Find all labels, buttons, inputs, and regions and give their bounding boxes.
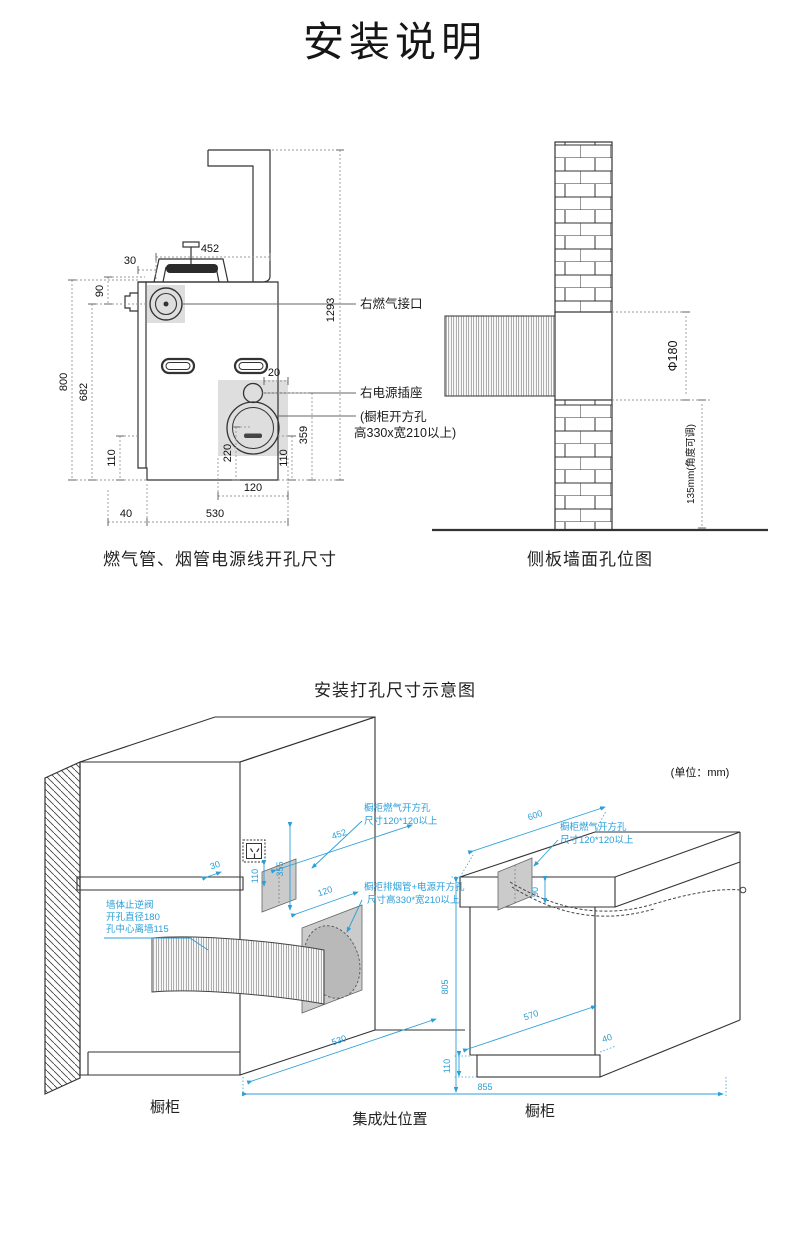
dim-855: 855 [477, 1082, 492, 1092]
gas-left-line2: 尺寸120*120以上 [364, 815, 438, 827]
dim-1293: 1293 [325, 298, 337, 322]
dim-90: 90 [94, 285, 106, 297]
brick-wall [555, 142, 612, 530]
gas-right-callout: 橱柜燃气开方孔 尺寸120*120以上 [534, 821, 634, 866]
exhaust-line2: 尺寸高330*宽210以上 [367, 894, 460, 906]
label-right-gas: 右燃气接口 [360, 296, 423, 311]
dim-570: 570 [522, 1008, 539, 1022]
gas-inlet-nozzle [125, 293, 138, 311]
figure2-caption: 侧板墙面孔位图 [465, 545, 715, 570]
figure1-caption: 燃气管、烟管电源线开孔尺寸 [55, 545, 385, 570]
dim-600: 600 [526, 808, 543, 822]
page-title: 安装说明 [0, 8, 790, 68]
gas-right-line2: 尺寸120*120以上 [560, 834, 634, 846]
dim-110-left: 110 [106, 449, 118, 467]
dim-diameter-180: Φ180 [666, 341, 680, 372]
dim-110-plinth: 110 [442, 1059, 452, 1073]
exhaust-callout: 橱柜排烟管+电源开方孔 尺寸高330*宽210以上 [347, 881, 465, 932]
exhaust-line1: 橱柜排烟管+电源开方孔 [364, 881, 465, 893]
dim-452: 452 [330, 827, 347, 841]
dim-530: 530 [330, 1033, 347, 1047]
power-socket-icon [243, 840, 265, 862]
label-stove-position: 集成灶位置 [352, 1111, 427, 1128]
dim-135mm: 135mm(角度可调) [684, 424, 697, 504]
dim-20: 20 [268, 367, 280, 379]
dim-30: 30 [209, 859, 222, 872]
figure-installation-isometric: (单位：mm) [40, 700, 760, 1140]
dim-805: 805 [440, 979, 450, 994]
dim-120: 120 [244, 482, 262, 494]
dimension-ticks [68, 150, 344, 526]
dim-220: 220 [222, 444, 234, 462]
dim-682: 682 [78, 383, 90, 401]
dim-110-right: 110 [278, 449, 290, 467]
label-right-power: 右电源插座 [360, 385, 423, 400]
wall-valve-line2: 开孔直径180 [106, 911, 160, 923]
burner-bar [166, 264, 218, 273]
dim-40: 40 [120, 508, 132, 520]
corrugated-duct [445, 316, 555, 396]
side-wall-hatched [45, 762, 80, 1094]
label-cabinet-opening-1: (橱柜开方孔 [360, 409, 427, 424]
label-cabinet-right: 橱柜 [525, 1103, 555, 1120]
right-cabinet [460, 832, 740, 1077]
dim-30: 30 [124, 255, 136, 267]
dim-90: 90 [530, 887, 540, 897]
label-cabinet-left: 橱柜 [150, 1099, 180, 1116]
corrugated-duct [152, 937, 324, 1004]
vent-slots [162, 359, 267, 373]
gas-right-line1: 橱柜燃气开方孔 [560, 821, 627, 833]
wall-valve-line1: 墙体止逆阀 [106, 899, 154, 911]
dim-530: 530 [206, 508, 224, 520]
gas-hose-end [740, 887, 746, 893]
dim-355: 355 [275, 861, 285, 876]
gas-hose-dashed [510, 882, 740, 916]
dim-120: 120 [316, 884, 333, 898]
dim-359: 359 [298, 426, 310, 444]
dim-452: 452 [201, 243, 219, 255]
dim-800: 800 [58, 373, 70, 391]
dim-110-socket: 110 [250, 869, 260, 883]
wall-valve-line3: 孔中心离墙115 [106, 923, 169, 935]
figure3-title: 安装打孔尺寸示意图 [0, 676, 790, 701]
gas-left-line1: 橱柜燃气开方孔 [364, 802, 431, 814]
unit-note: (单位：mm) [671, 765, 730, 779]
dim-40: 40 [601, 1032, 614, 1045]
figure-wall-hole-position: Φ180 135mm(角度可调) [430, 132, 770, 542]
